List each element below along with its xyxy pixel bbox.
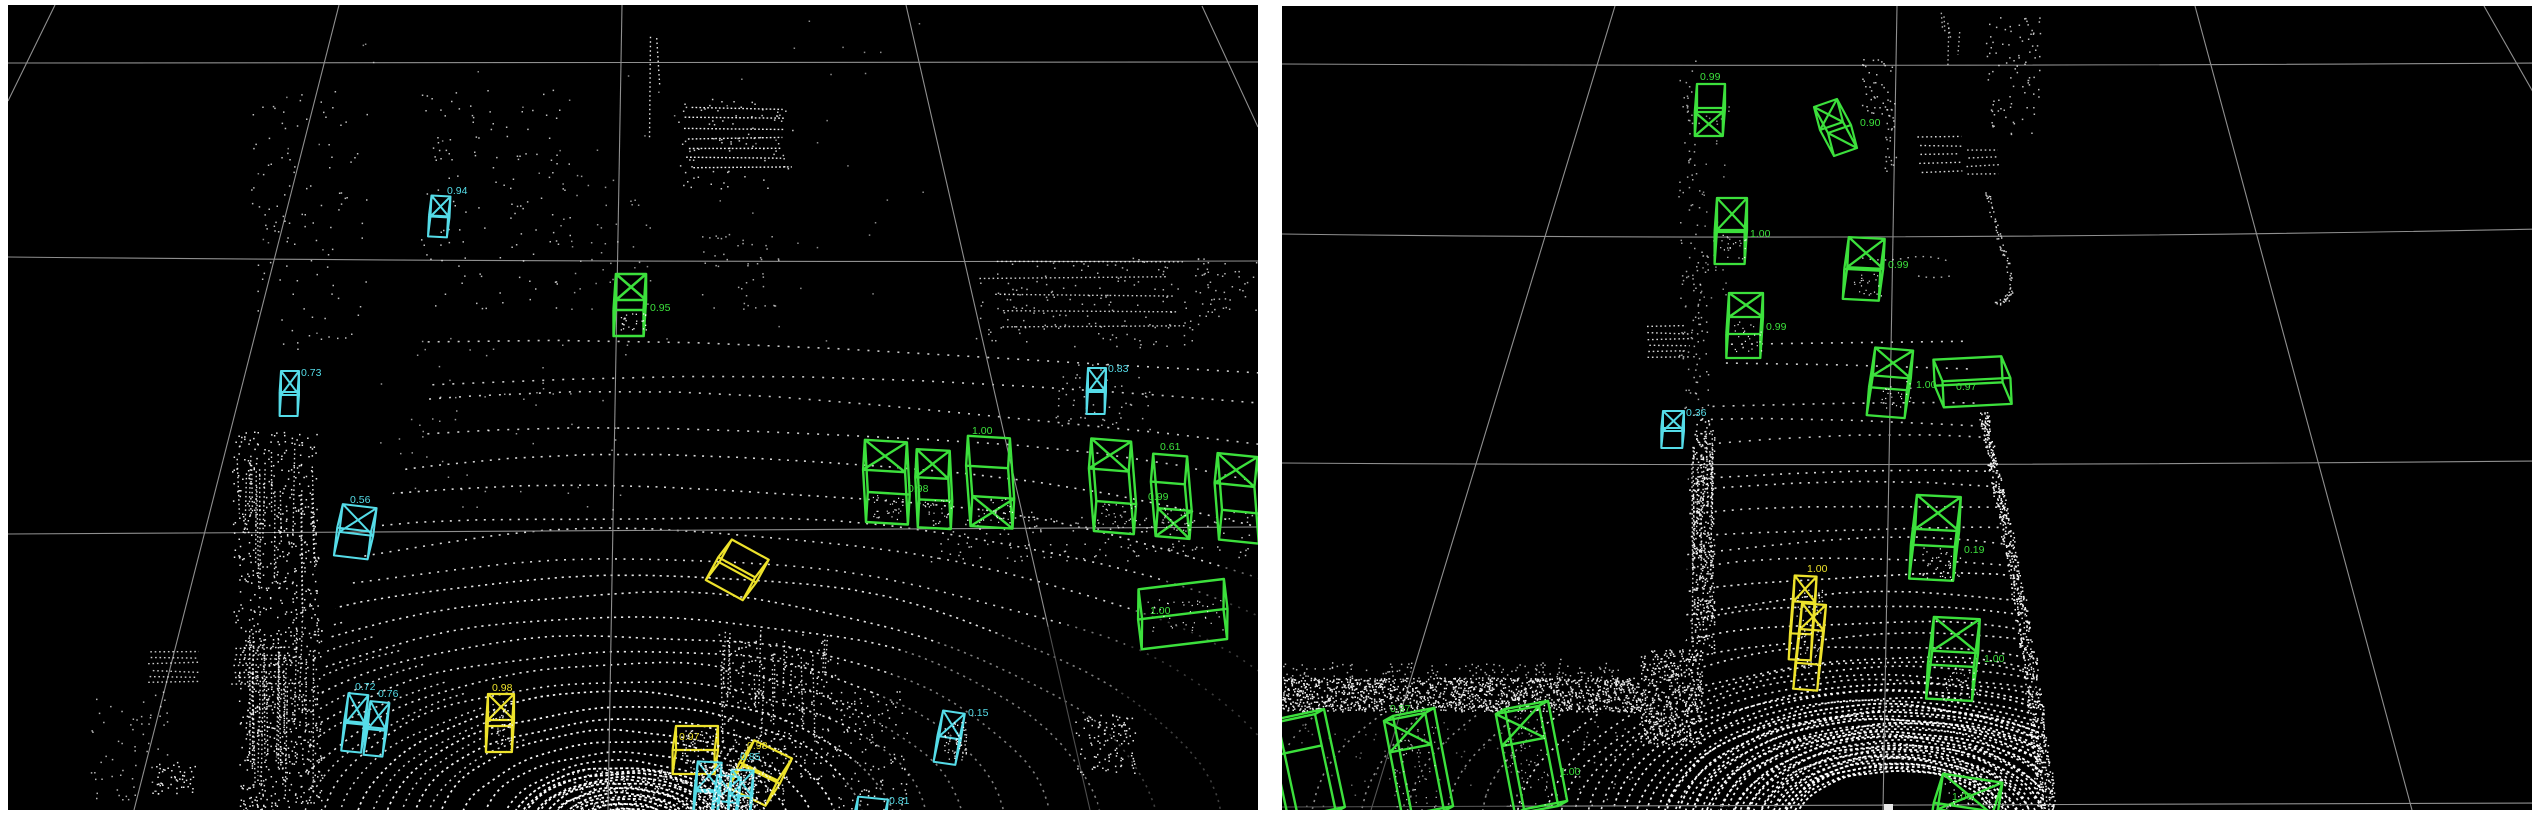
svg-text:0.83: 0.83 [1108,363,1129,375]
svg-text:0.72: 0.72 [355,681,376,693]
svg-text:0.99: 0.99 [1700,71,1721,83]
svg-text:1.00: 1.00 [972,425,993,437]
svg-text:0.94: 0.94 [447,185,468,197]
svg-text:0.99: 0.99 [1766,321,1787,333]
svg-text:0.97: 0.97 [679,731,700,743]
svg-text:0.36: 0.36 [1686,407,1707,419]
svg-text:0.99: 0.99 [1888,259,1909,271]
svg-text:0.56: 0.56 [350,494,371,506]
svg-text:0.61: 0.61 [1160,441,1181,453]
svg-text:0.73: 0.73 [301,367,322,379]
svg-text:1.00: 1.00 [1560,766,1581,778]
svg-text:1.00: 1.00 [1750,228,1771,240]
svg-text:1.00: 1.00 [1150,605,1171,617]
svg-text:0.99: 0.99 [1148,491,1169,503]
svg-text:1.00: 1.00 [1807,563,1828,575]
svg-text:0.97: 0.97 [1390,703,1411,715]
svg-text:1.00: 1.00 [1984,653,2005,665]
svg-text:0.98: 0.98 [908,483,929,495]
svg-text:0.95: 0.95 [650,302,671,314]
svg-text:0.90: 0.90 [1860,117,1881,129]
svg-text:1.00: 1.00 [1916,379,1937,391]
svg-text:0.85: 0.85 [740,751,761,763]
svg-text:0.76: 0.76 [378,688,399,700]
svg-text:0.15: 0.15 [968,707,989,719]
svg-text:0.81: 0.81 [889,795,910,807]
svg-text:0.19: 0.19 [1964,544,1985,556]
svg-text:0.98: 0.98 [492,682,513,694]
svg-text:0.97: 0.97 [1956,381,1977,393]
